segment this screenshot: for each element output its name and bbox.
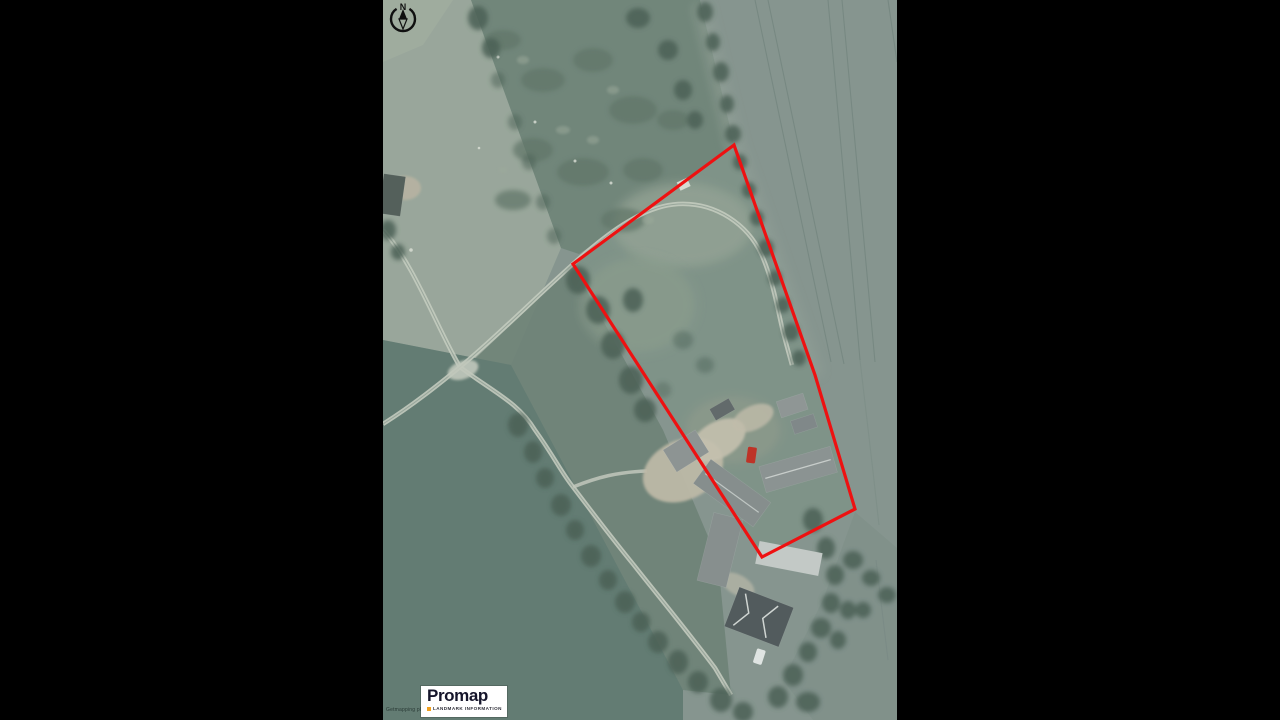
map-canvas: N Getmapping plc 2011: [383, 0, 897, 720]
promap-logo: Promap LANDMARK INFORMATION: [421, 686, 507, 717]
haze-overlay: [383, 0, 897, 720]
logo-tagline-text: LANDMARK INFORMATION: [433, 706, 502, 711]
north-label: N: [400, 2, 407, 12]
letterbox-right: [897, 0, 1280, 720]
logo-subline: LANDMARK INFORMATION: [427, 706, 503, 711]
letterbox-left: [0, 0, 383, 720]
landmark-bullet-icon: [427, 707, 431, 711]
screenshot-stage: N Getmapping plc 2011 Promap LANDMARK IN…: [0, 0, 1280, 720]
logo-brand-text: Promap: [427, 687, 503, 705]
aerial-scene: N: [383, 0, 897, 720]
